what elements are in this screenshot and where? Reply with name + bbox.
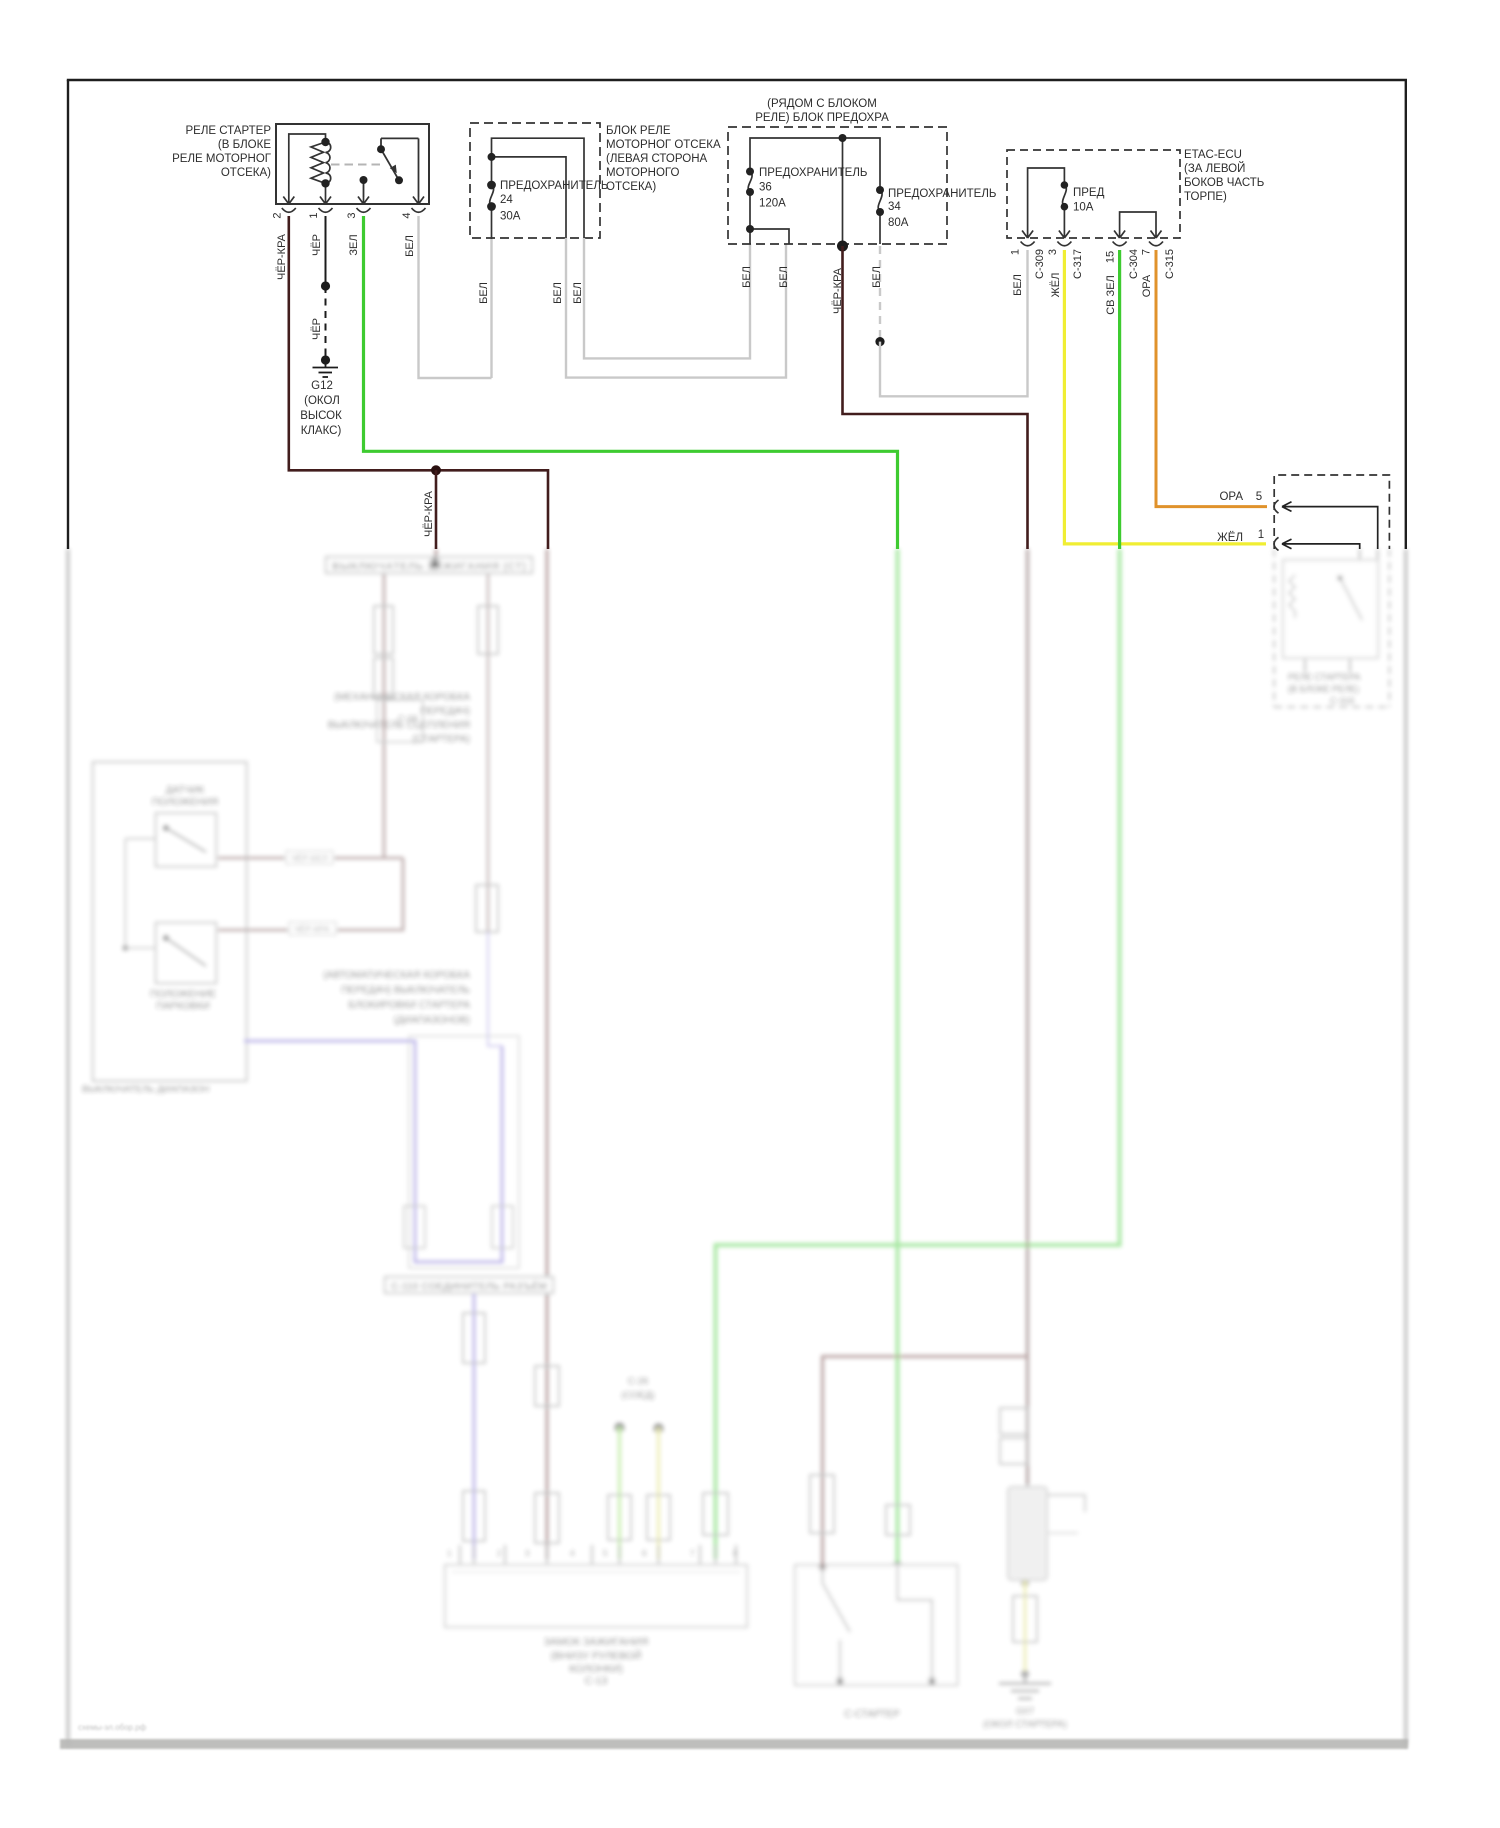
svg-text:5: 5 <box>603 1549 608 1558</box>
svg-text:3: 3 <box>1047 249 1059 255</box>
svg-text:6: 6 <box>642 1549 647 1558</box>
svg-text:БЕЛ: БЕЛ <box>572 282 584 304</box>
svg-text:C-304: C-304 <box>1128 249 1140 279</box>
svg-text:ЧЁР: ЧЁР <box>311 318 323 340</box>
svg-text:ВЫКЛЮЧАТЕЛЬ ЗАЖИГАНИЯ (СТ): ВЫКЛЮЧАТЕЛЬ ЗАЖИГАНИЯ (СТ) <box>332 561 526 573</box>
svg-text:БЕЛ: БЕЛ <box>741 266 753 288</box>
svg-text:1: 1 <box>1258 529 1264 541</box>
svg-text:ДАТЧИК: ДАТЧИК <box>166 785 205 796</box>
svg-text:ПОЛОЖЕНИЕ: ПОЛОЖЕНИЕ <box>150 989 216 1000</box>
svg-text:2: 2 <box>272 212 284 218</box>
svg-text:3: 3 <box>346 212 358 218</box>
svg-text:C-309: C-309 <box>1034 249 1046 279</box>
svg-text:МОТОРНОГ ОТСЕКА: МОТОРНОГ ОТСЕКА <box>606 139 721 151</box>
svg-text:С-СТАРТЕР: С-СТАРТЕР <box>844 1709 900 1720</box>
svg-text:(СОЕД): (СОЕД) <box>621 1390 654 1401</box>
svg-text:ЧЁР: ЧЁР <box>311 234 323 256</box>
svg-text:1: 1 <box>1010 249 1022 255</box>
svg-text:КОЛОНКИ): КОЛОНКИ) <box>569 1663 623 1675</box>
svg-text:ETAC-ECU: ETAC-ECU <box>1184 149 1242 161</box>
svg-text:РЕЛЕ СТАРТЕР: РЕЛЕ СТАРТЕР <box>185 125 271 137</box>
svg-text:БЕЛ: БЕЛ <box>478 282 490 304</box>
svg-text:5: 5 <box>1256 491 1262 503</box>
svg-text:ЧЁР-КРА: ЧЁР-КРА <box>294 924 330 934</box>
svg-text:(В БЛОКЕ РЕЛЕ): (В БЛОКЕ РЕЛЕ) <box>1288 684 1359 694</box>
svg-text:ЖЁЛ: ЖЁЛ <box>1050 273 1062 298</box>
svg-text:10А: 10А <box>1073 202 1094 214</box>
svg-text:(ОКОЛ СТАРТЕРА): (ОКОЛ СТАРТЕРА) <box>983 1719 1067 1730</box>
svg-text:24: 24 <box>500 194 513 206</box>
svg-text:(МЕХАНИЧЕСКАЯ КОРОБКА: (МЕХАНИЧЕСКАЯ КОРОБКА <box>334 692 470 703</box>
svg-text:(ЛЕВАЯ СТОРОНА: (ЛЕВАЯ СТОРОНА <box>606 153 708 165</box>
svg-text:ПОЛОЖЕНИЯ: ПОЛОЖЕНИЯ <box>152 797 219 808</box>
svg-text:ТОРПЕ): ТОРПЕ) <box>1184 191 1227 203</box>
svg-text:(РЯДОМ С БЛОКОМ: (РЯДОМ С БЛОКОМ <box>767 98 877 110</box>
svg-text:7: 7 <box>690 1549 695 1558</box>
svg-text:схемы-эл.обор.рф: схемы-эл.обор.рф <box>78 1723 147 1732</box>
svg-text:(ВНИЗУ РУЛЕВОЙ: (ВНИЗУ РУЛЕВОЙ <box>551 1649 642 1662</box>
svg-text:РЕЛЕ СТАРТЕРА: РЕЛЕ СТАРТЕРА <box>1288 672 1360 682</box>
svg-text:4: 4 <box>570 1549 575 1558</box>
svg-text:1: 1 <box>447 1549 452 1558</box>
svg-text:G12: G12 <box>311 380 333 392</box>
svg-text:80А: 80А <box>888 217 909 229</box>
svg-text:2: 2 <box>497 1549 502 1558</box>
svg-text:РЕЛЕ) БЛОК ПРЕДОХРА: РЕЛЕ) БЛОК ПРЕДОХРА <box>755 112 889 124</box>
svg-text:БЕЛ: БЕЛ <box>552 282 564 304</box>
svg-text:C-317: C-317 <box>1072 249 1084 279</box>
svg-text:C-315: C-315 <box>1164 249 1176 279</box>
svg-text:ВЫСОК: ВЫСОК <box>300 410 342 422</box>
svg-text:ЧЁР-КРА: ЧЁР-КРА <box>423 490 435 537</box>
svg-text:БЕЛ: БЕЛ <box>778 266 790 288</box>
svg-text:С-13: С-13 <box>585 1675 608 1687</box>
svg-text:С-26: С-26 <box>628 1376 649 1387</box>
svg-text:КЛАКС): КЛАКС) <box>301 425 342 437</box>
svg-text:15: 15 <box>1105 251 1117 263</box>
svg-text:36: 36 <box>759 182 772 194</box>
svg-text:ЧЁР-БЕЛ: ЧЁР-БЕЛ <box>291 853 328 863</box>
svg-text:(АВТОМАТИЧЕСКАЯ КОРОБКА: (АВТОМАТИЧЕСКАЯ КОРОБКА <box>323 970 470 981</box>
svg-text:(ДИАПАЗОНОВ): (ДИАПАЗОНОВ) <box>394 1015 470 1026</box>
svg-text:ЗАМОК ЗАЖИГАНИЯ: ЗАМОК ЗАЖИГАНИЯ <box>544 1636 649 1648</box>
svg-text:ЖЁЛ: ЖЁЛ <box>1217 532 1243 544</box>
svg-text:7: 7 <box>1141 249 1153 255</box>
svg-text:ОРА: ОРА <box>1141 274 1153 297</box>
svg-text:МОТОРНОГО: МОТОРНОГО <box>606 167 679 179</box>
svg-text:ПАРКОВКИ: ПАРКОВКИ <box>156 1001 210 1012</box>
svg-text:БЛОК РЕЛЕ: БЛОК РЕЛЕ <box>606 125 671 137</box>
svg-text:ОРА: ОРА <box>1219 491 1243 503</box>
svg-text:ВЫКЛЮЧАТЕЛЬ СЦЕПЛЕНИЯ: ВЫКЛЮЧАТЕЛЬ СЦЕПЛЕНИЯ <box>328 720 470 731</box>
svg-text:СВ ЗЕЛ: СВ ЗЕЛ <box>1105 275 1117 315</box>
svg-text:30А: 30А <box>500 211 521 223</box>
svg-text:(ЗА ЛЕВОЙ: (ЗА ЛЕВОЙ <box>1184 162 1245 175</box>
svg-text:(ОКОЛ: (ОКОЛ <box>304 395 340 407</box>
svg-text:РЕЛЕ МОТОРНОГ: РЕЛЕ МОТОРНОГ <box>172 153 272 165</box>
svg-text:БЕЛ: БЕЛ <box>871 266 883 288</box>
svg-text:ПРЕДОХРАНИТЕЛЬ: ПРЕДОХРАНИТЕЛЬ <box>500 180 608 192</box>
svg-text:ПРЕДОХРАНИТЕЛЬ: ПРЕДОХРАНИТЕЛЬ <box>888 188 996 200</box>
svg-text:(В БЛОКЕ: (В БЛОКЕ <box>218 139 271 151</box>
svg-text:ПРЕДОХРАНИТЕЛЬ: ПРЕДОХРАНИТЕЛЬ <box>759 167 867 179</box>
svg-text:4: 4 <box>401 212 413 218</box>
svg-text:ВЫКЛЮЧАТЕЛЬ ДИАПАЗОН: ВЫКЛЮЧАТЕЛЬ ДИАПАЗОН <box>82 1084 210 1095</box>
svg-text:G07: G07 <box>1016 1706 1034 1717</box>
svg-text:ОТСЕКА): ОТСЕКА) <box>221 167 271 179</box>
svg-text:1: 1 <box>308 212 320 218</box>
svg-text:С-315: С-315 <box>1330 696 1355 706</box>
svg-text:БЛОКИРОВКИ СТАРТЕРА: БЛОКИРОВКИ СТАРТЕРА <box>348 1000 470 1011</box>
svg-text:БЕЛ: БЕЛ <box>1012 274 1024 296</box>
svg-text:34: 34 <box>888 201 901 213</box>
svg-text:ЧЁР-КРА: ЧЁР-КРА <box>276 233 288 280</box>
svg-text:3: 3 <box>525 1549 530 1558</box>
svg-text:С-110 СОЕДИНИТЕЛЬ РАЗЪЁМ: С-110 СОЕДИНИТЕЛЬ РАЗЪЁМ <box>391 1280 547 1293</box>
svg-text:ОТСЕКА): ОТСЕКА) <box>606 181 656 193</box>
svg-text:8: 8 <box>733 1549 738 1558</box>
svg-text:120А: 120А <box>759 198 786 210</box>
svg-text:ЧЁР-КРА: ЧЁР-КРА <box>832 267 844 314</box>
svg-text:БОКОВ ЧАСТЬ: БОКОВ ЧАСТЬ <box>1184 177 1264 189</box>
svg-text:ЗЕЛ: ЗЕЛ <box>348 234 360 255</box>
svg-text:БЕЛ: БЕЛ <box>404 235 416 257</box>
svg-text:ПРЕД: ПРЕД <box>1073 187 1105 199</box>
svg-text:ПЕРЕДАЧ) ВЫКЛЮЧАТЕЛЬ: ПЕРЕДАЧ) ВЫКЛЮЧАТЕЛЬ <box>341 985 470 996</box>
svg-text:ПЕРЕДАЧ): ПЕРЕДАЧ) <box>420 706 470 717</box>
svg-text:(СТАРТЕРА): (СТАРТЕРА) <box>412 734 470 745</box>
